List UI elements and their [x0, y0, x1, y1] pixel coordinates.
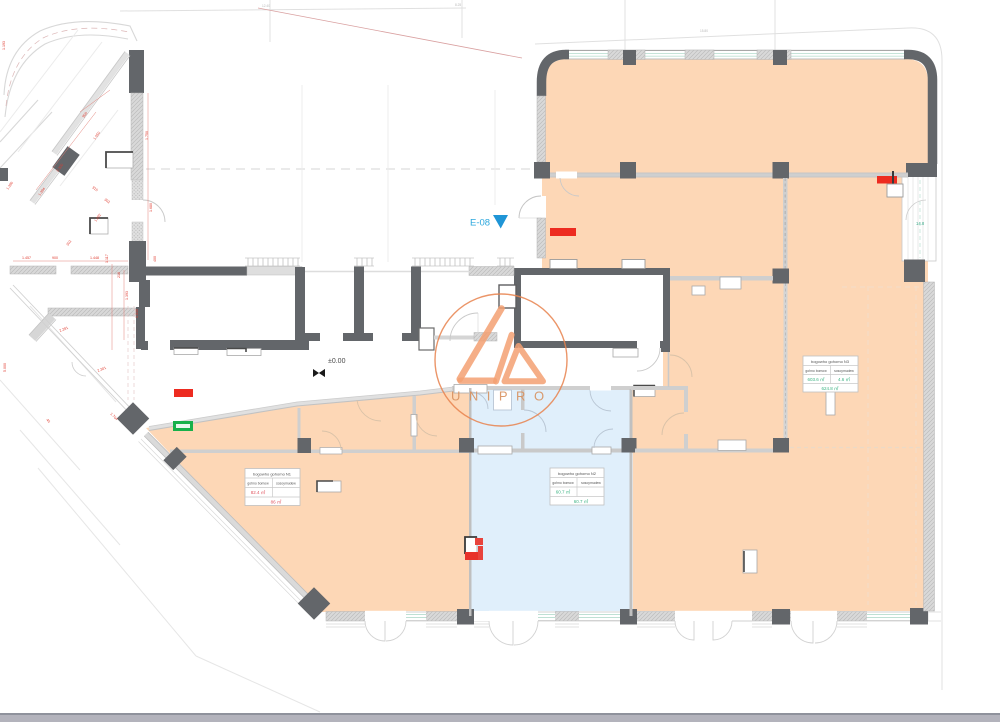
svg-text:15.80: 15.80	[700, 29, 708, 33]
svg-text:gohno bomow: gohno bomow	[552, 481, 574, 485]
svg-text:1.680: 1.680	[149, 203, 153, 212]
svg-text:1.448: 1.448	[90, 256, 99, 260]
svg-text:82.4 ㎡: 82.4 ㎡	[251, 489, 266, 495]
svg-text:bogowho gohomo N1: bogowho gohomo N1	[253, 472, 292, 477]
svg-text:±0.00: ±0.00	[328, 358, 346, 365]
svg-text:400: 400	[153, 256, 157, 262]
svg-text:1.040: 1.040	[135, 309, 139, 318]
svg-text:900: 900	[52, 256, 58, 260]
svg-text:14.8: 14.8	[916, 221, 925, 226]
svg-text:8.25: 8.25	[455, 3, 461, 7]
svg-text:gohno bomow: gohno bomow	[247, 482, 269, 486]
svg-text:1.750: 1.750	[145, 131, 149, 140]
svg-text:603.6 ㎡: 603.6 ㎡	[807, 376, 825, 382]
svg-text:60.7 ㎡: 60.7 ㎡	[574, 498, 589, 504]
svg-text:E-08: E-08	[470, 218, 490, 229]
svg-text:12.40: 12.40	[262, 4, 270, 8]
svg-text:gohno bomow: gohno bomow	[805, 369, 827, 373]
svg-text:1.457: 1.457	[22, 256, 31, 260]
svg-text:86 ㎡: 86 ㎡	[271, 499, 282, 505]
svg-text:4.6 ㎡: 4.6 ㎡	[838, 376, 851, 382]
svg-text:5.000: 5.000	[3, 363, 7, 372]
svg-text:bogowho gohomo N3: bogowho gohomo N3	[811, 359, 850, 364]
svg-text:sosoymudew: sosoymudew	[834, 369, 854, 373]
svg-text:UNIPRO: UNIPRO	[451, 389, 553, 404]
svg-text:bogowho gohomo N2: bogowho gohomo N2	[558, 471, 597, 476]
svg-text:624.8 ㎡: 624.8 ㎡	[821, 385, 839, 391]
svg-text:sosoymudew: sosoymudew	[581, 481, 601, 485]
svg-text:60.7 ㎡: 60.7 ㎡	[556, 489, 571, 495]
svg-text:sosoymudew: sosoymudew	[276, 482, 296, 486]
svg-text:1.117: 1.117	[105, 254, 109, 263]
svg-text:1.393: 1.393	[125, 291, 129, 300]
svg-text:216: 216	[117, 272, 121, 278]
svg-text:1.193: 1.193	[2, 41, 6, 50]
